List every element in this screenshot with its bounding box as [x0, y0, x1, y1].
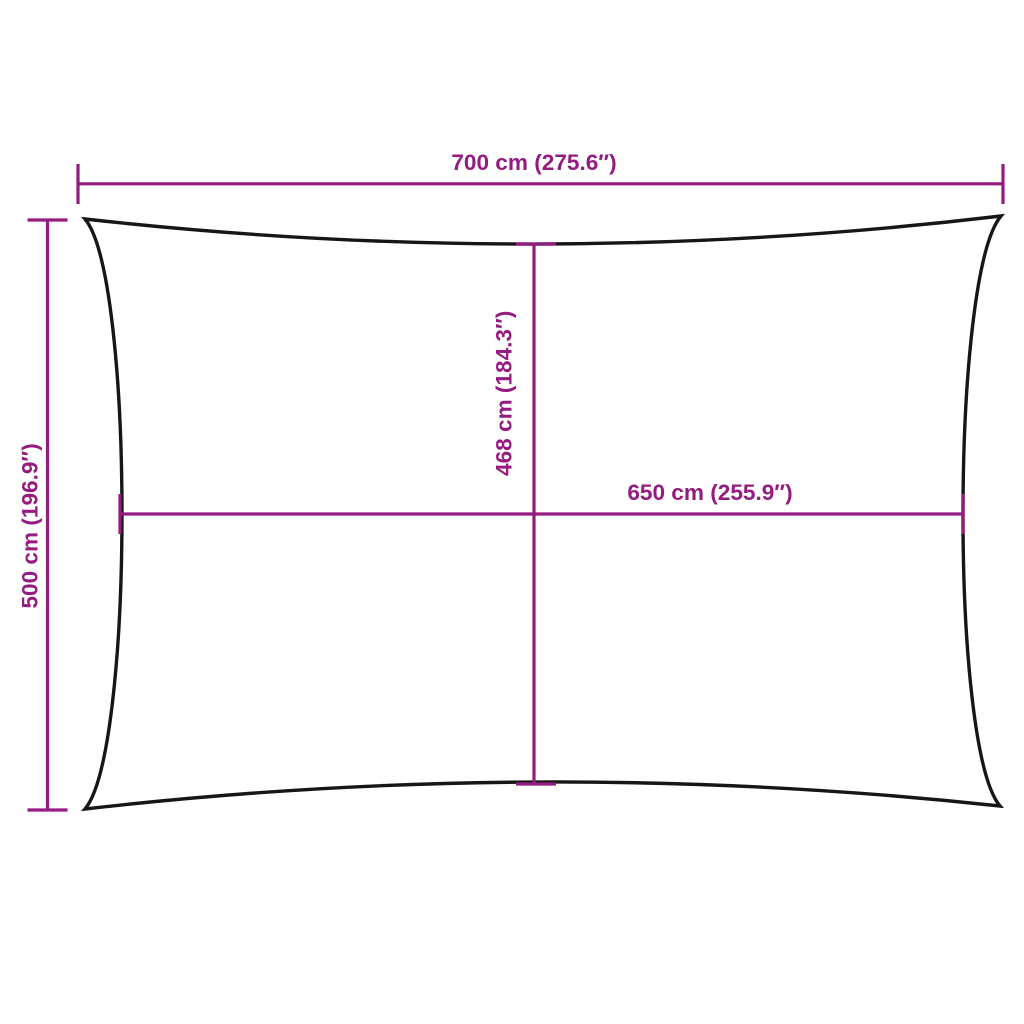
svg-text:468 cm (184.3″): 468 cm (184.3″) — [492, 311, 517, 476]
svg-text:650 cm (255.9″): 650 cm (255.9″) — [627, 480, 792, 505]
svg-text:700 cm (275.6″): 700 cm (275.6″) — [451, 150, 616, 175]
svg-text:500 cm (196.9″): 500 cm (196.9″) — [18, 443, 43, 608]
